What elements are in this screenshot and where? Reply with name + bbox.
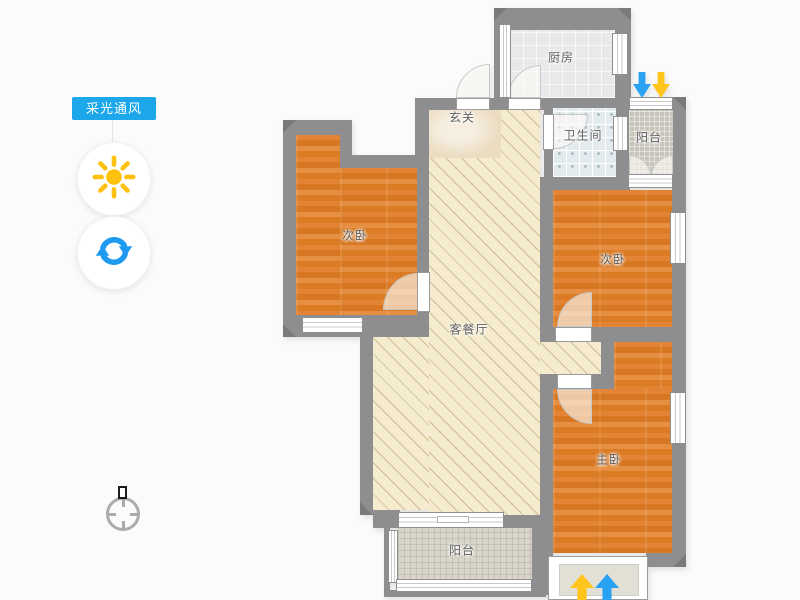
room-bedroom-left bbox=[296, 135, 340, 315]
wall-segment bbox=[415, 98, 429, 158]
bay-window bbox=[548, 556, 648, 600]
room-label-bedroom-right: 次卧 bbox=[600, 251, 626, 268]
room-label-kitchen: 厨房 bbox=[548, 49, 574, 66]
window bbox=[613, 116, 628, 151]
wall-segment bbox=[494, 8, 631, 30]
wall-segment bbox=[360, 337, 373, 515]
window bbox=[628, 174, 673, 188]
room-master-bedroom bbox=[614, 342, 672, 389]
sliding-door-handle bbox=[437, 516, 469, 523]
master-door-leaf bbox=[557, 374, 592, 389]
window bbox=[302, 317, 363, 333]
window bbox=[396, 579, 532, 592]
window bbox=[629, 97, 673, 110]
window bbox=[612, 33, 628, 75]
room-label-master-bedroom: 主卧 bbox=[596, 451, 622, 468]
wall-segment bbox=[283, 120, 296, 337]
room-label-living-dining: 客餐厅 bbox=[449, 321, 488, 338]
window bbox=[670, 212, 686, 264]
entry-door-swing bbox=[456, 64, 490, 98]
sliding-door bbox=[398, 512, 504, 528]
room-label-bedroom-left: 次卧 bbox=[342, 227, 368, 244]
room-label-balcony-top: 阳台 bbox=[636, 129, 662, 146]
bathroom-door-leaf bbox=[543, 114, 554, 150]
wall-segment bbox=[489, 98, 509, 110]
bedroom-right-door-leaf bbox=[555, 327, 592, 342]
wall-segment bbox=[540, 389, 553, 510]
bedroom-left-door-leaf bbox=[417, 272, 430, 312]
room-living-dining bbox=[429, 110, 540, 515]
room-label-entry-hall: 玄关 bbox=[449, 109, 475, 126]
hallway-corridor bbox=[540, 342, 601, 374]
wall-segment bbox=[540, 177, 553, 327]
window bbox=[499, 24, 511, 98]
window bbox=[388, 530, 398, 583]
kitchen-door-leaf bbox=[508, 98, 541, 110]
window bbox=[670, 392, 686, 444]
room-label-bathroom: 卫生间 bbox=[563, 127, 602, 144]
airflow-arrow-down-blue bbox=[633, 72, 651, 98]
wall-segment bbox=[544, 177, 630, 190]
bay-window-sill bbox=[559, 564, 639, 596]
floor-plan: 厨房 玄关 卫生间 阳台 次卧 客餐厅 次卧 主卧 阳台 bbox=[0, 0, 800, 600]
floorplan-viewer: 采光通风 bbox=[0, 0, 800, 600]
room-living-dining-west bbox=[373, 337, 429, 510]
airflow-arrow-down-yellow bbox=[652, 72, 670, 98]
room-label-balcony-bottom: 阳台 bbox=[449, 542, 475, 559]
